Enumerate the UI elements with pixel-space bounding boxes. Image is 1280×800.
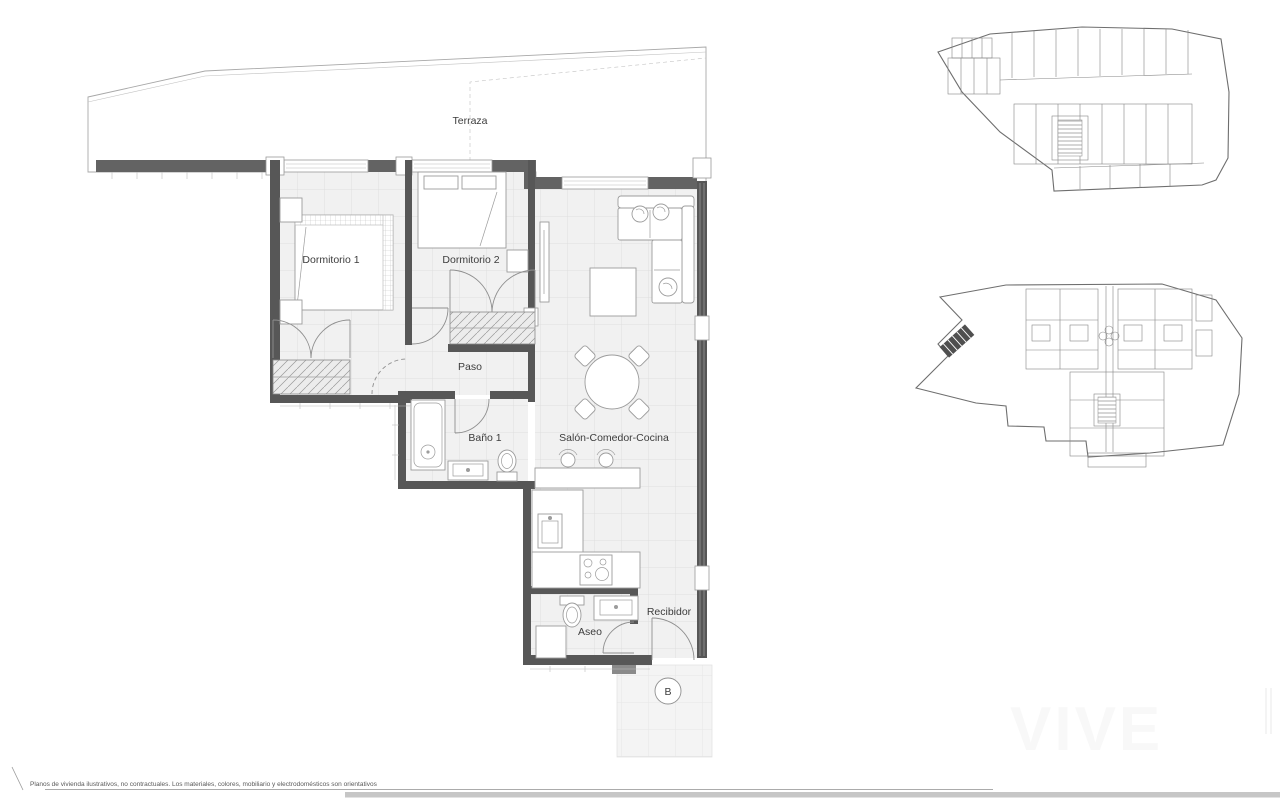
cooktop-icon <box>580 555 612 585</box>
bathtub-icon <box>411 400 445 470</box>
watermark: VIVE <box>1010 688 1271 764</box>
bed-icon <box>418 172 506 248</box>
main-floor-plan: Terraza Dormitorio 1 Dormitorio 2 Paso B… <box>88 47 712 757</box>
dining-table-icon <box>574 345 651 421</box>
disclaimer-text: Planos de vivienda ilustrativos, no cont… <box>30 781 378 788</box>
footer: Planos de vivienda ilustrativos, no cont… <box>12 767 1280 798</box>
label-salon: Salón-Comedor-Cocina <box>559 432 669 444</box>
window-dormitorio-1 <box>284 160 368 172</box>
entrance-step <box>612 665 636 674</box>
pillar <box>695 566 709 590</box>
tv-unit-icon <box>540 222 549 302</box>
pillar <box>695 316 709 340</box>
coffee-table-icon <box>590 268 636 316</box>
shower-tray-icon <box>536 626 566 658</box>
window-dormitorio-2 <box>412 160 492 172</box>
floor-plan-page: Terraza Dormitorio 1 Dormitorio 2 Paso B… <box>0 0 1280 800</box>
sink-icon <box>538 514 562 548</box>
label-bano-1: Baño 1 <box>468 432 501 444</box>
terrace-balusters <box>112 172 262 179</box>
nightstand-icon <box>280 300 302 324</box>
nightstand-icon <box>507 250 528 272</box>
plan-canvas: Terraza Dormitorio 1 Dormitorio 2 Paso B… <box>0 0 1280 800</box>
label-recibidor: Recibidor <box>647 606 692 618</box>
watermark-text: VIVE <box>1010 695 1163 764</box>
label-paso: Paso <box>458 361 482 373</box>
pillar <box>693 158 711 178</box>
label-dormitorio-1: Dormitorio 1 <box>302 254 359 266</box>
portal-letter: B <box>664 686 671 698</box>
nightstand-icon <box>280 198 302 222</box>
portal-badge: B <box>655 678 681 704</box>
washbasin-icon <box>594 596 638 620</box>
label-dormitorio-2: Dormitorio 2 <box>442 254 499 266</box>
washbasin-icon <box>448 461 488 480</box>
kitchen-island-icon <box>535 468 640 488</box>
site-plan-floor-key <box>916 284 1242 467</box>
toilet-icon <box>497 450 517 481</box>
label-aseo: Aseo <box>578 626 602 638</box>
site-plan-garage <box>938 27 1229 191</box>
bottom-bar <box>345 792 1280 798</box>
label-terraza: Terraza <box>452 115 487 127</box>
window-salon <box>562 177 648 189</box>
